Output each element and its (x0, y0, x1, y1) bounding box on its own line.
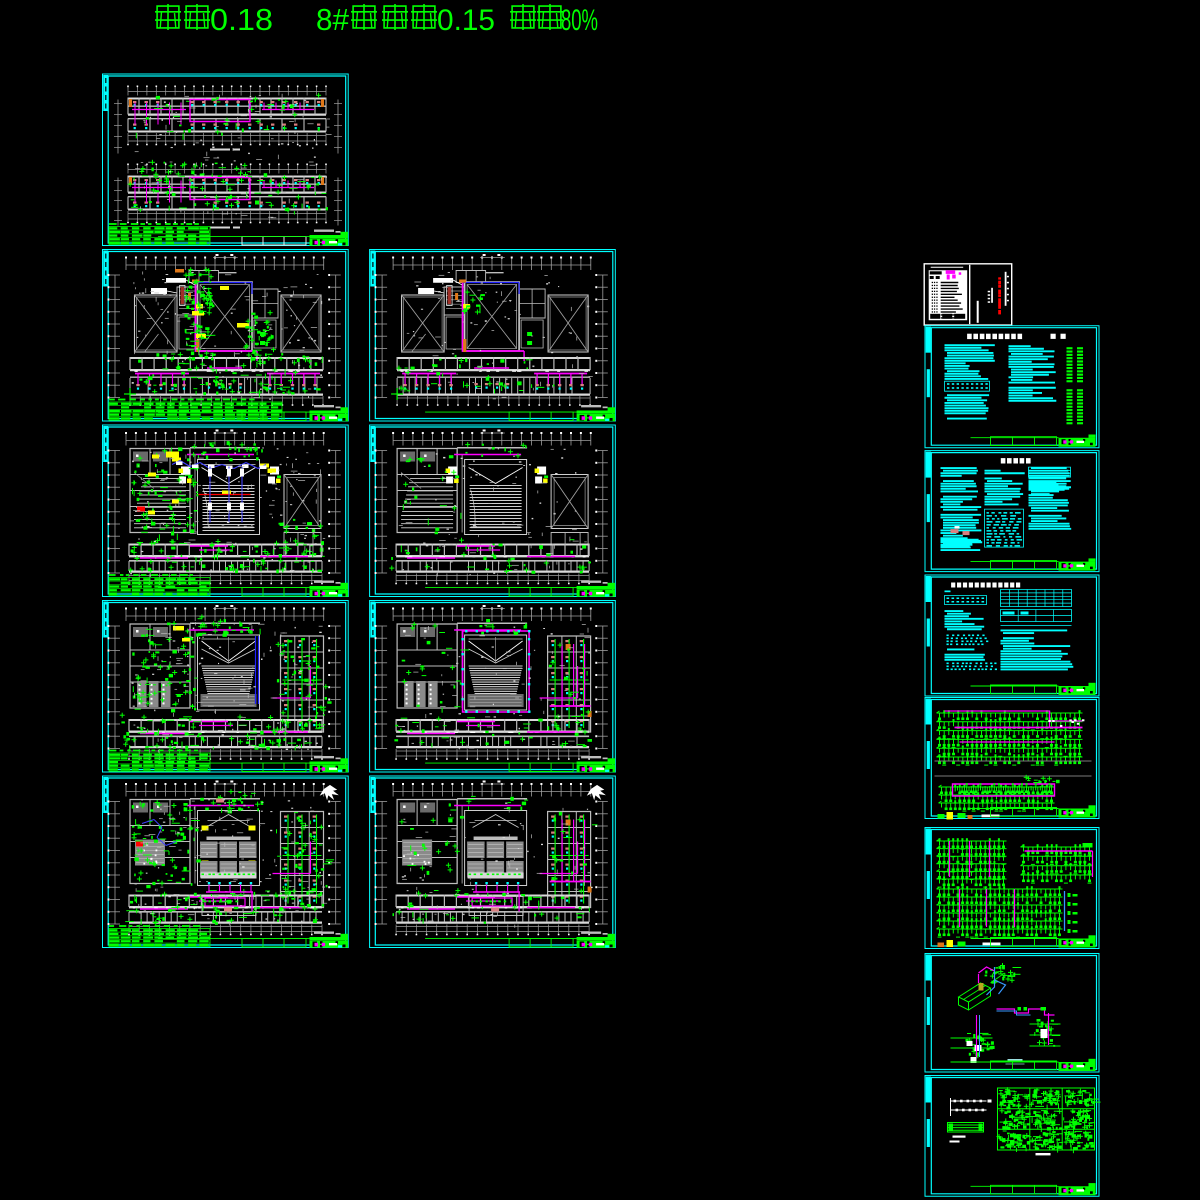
svg-text:80%: 80% (561, 4, 598, 37)
svg-text:0.15: 0.15 (437, 4, 495, 37)
svg-text:8#: 8# (316, 2, 350, 37)
svg-text:0.18: 0.18 (210, 2, 273, 37)
